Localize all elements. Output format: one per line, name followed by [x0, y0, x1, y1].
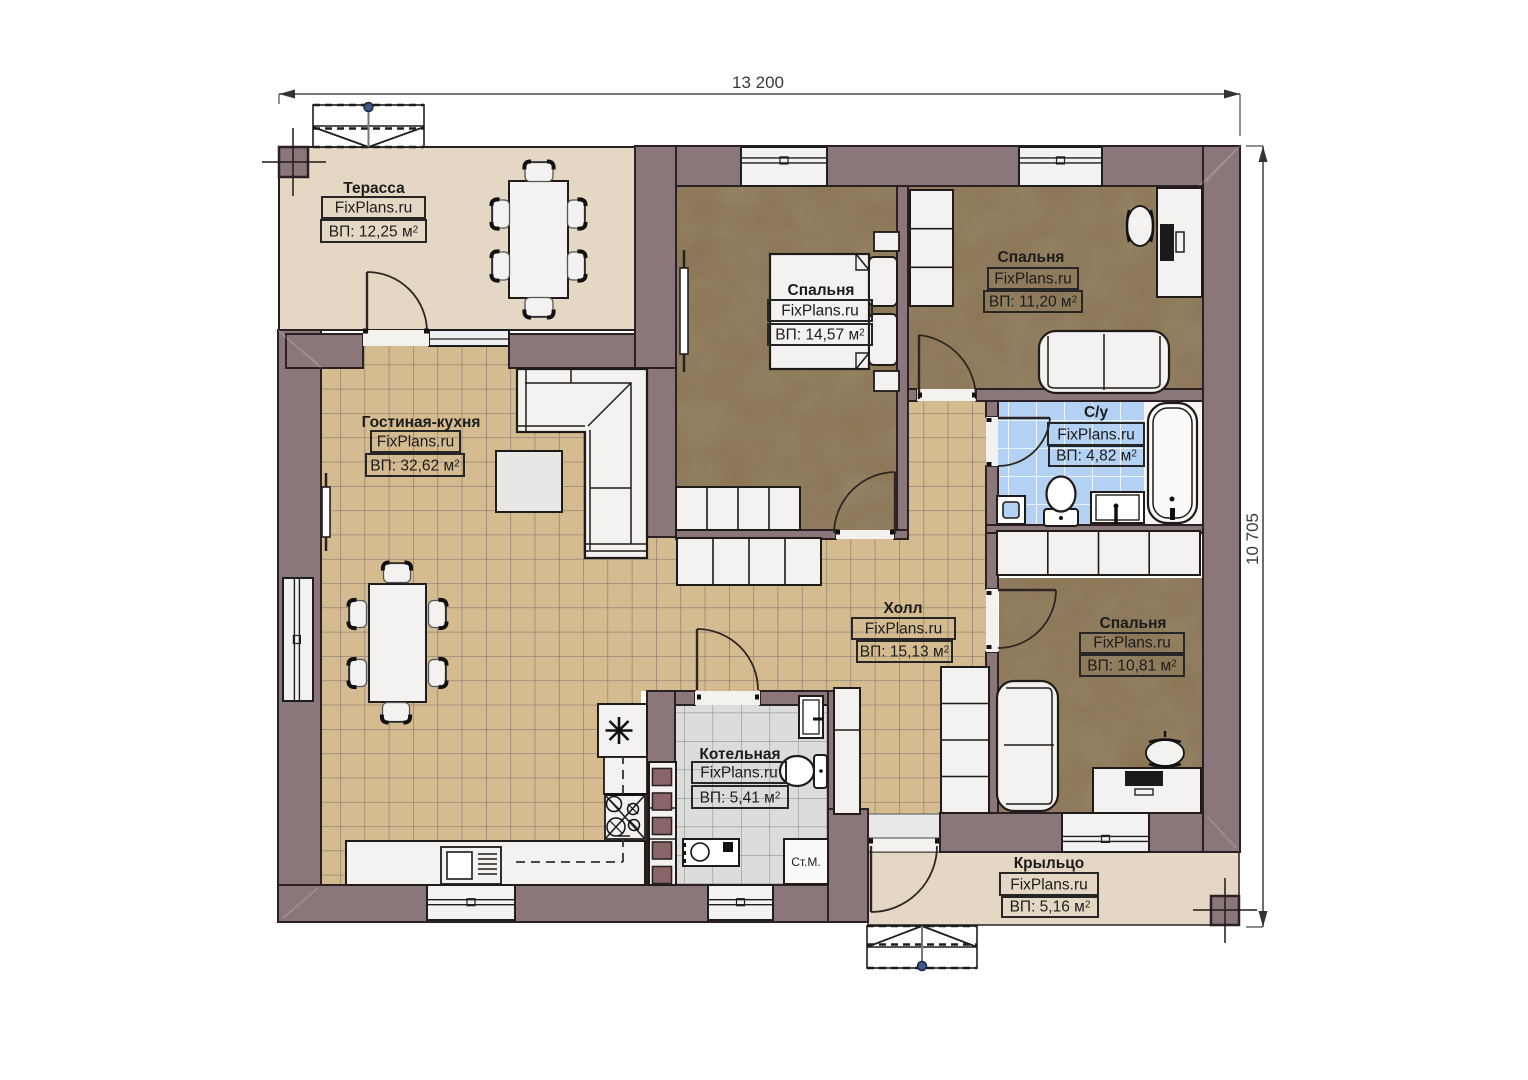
svg-text:FixPlans.ru: FixPlans.ru: [377, 434, 455, 451]
svg-text:ВП: 4,82 м2: ВП: 4,82 м2: [1056, 448, 1137, 465]
svg-text:FixPlans.ru: FixPlans.ru: [335, 200, 413, 217]
svg-text:С/у: С/у: [1084, 404, 1109, 421]
svg-text:ВП: 32,62 м2: ВП: 32,62 м2: [370, 458, 460, 475]
svg-text:ВП: 14,57 м2: ВП: 14,57 м2: [775, 327, 865, 344]
svg-text:ВП: 10,81 м2: ВП: 10,81 м2: [1087, 658, 1177, 675]
svg-text:Котельная: Котельная: [699, 746, 780, 763]
svg-text:10 705: 10 705: [1243, 513, 1262, 565]
svg-text:Ст.М.: Ст.М.: [791, 855, 821, 869]
svg-text:Спальня: Спальня: [1100, 615, 1167, 632]
svg-text:ВП: 5,16 м2: ВП: 5,16 м2: [1010, 899, 1091, 916]
svg-text:ВП: 5,41 м2: ВП: 5,41 м2: [700, 790, 781, 807]
svg-text:FixPlans.ru: FixPlans.ru: [865, 621, 943, 638]
svg-text:FixPlans.ru: FixPlans.ru: [1093, 635, 1171, 652]
svg-text:Гостиная-кухня: Гостиная-кухня: [362, 414, 481, 431]
svg-text:Спальня: Спальня: [788, 282, 855, 299]
svg-text:Терасса: Терасса: [343, 180, 405, 197]
svg-text:Спальня: Спальня: [998, 249, 1065, 266]
svg-text:ВП: 12,25 м2: ВП: 12,25 м2: [329, 224, 419, 241]
svg-text:ВП: 11,20 м2: ВП: 11,20 м2: [989, 294, 1078, 311]
svg-text:ВП: 15,13 м2: ВП: 15,13 м2: [860, 644, 950, 661]
svg-text:Холл: Холл: [884, 600, 923, 617]
svg-text:FixPlans.ru: FixPlans.ru: [700, 765, 778, 782]
svg-text:13 200: 13 200: [732, 73, 784, 92]
svg-text:FixPlans.ru: FixPlans.ru: [994, 271, 1072, 288]
svg-text:Крыльцо: Крыльцо: [1014, 855, 1085, 872]
svg-text:FixPlans.ru: FixPlans.ru: [781, 303, 859, 320]
svg-text:FixPlans.ru: FixPlans.ru: [1010, 877, 1088, 894]
svg-text:FixPlans.ru: FixPlans.ru: [1057, 427, 1135, 444]
